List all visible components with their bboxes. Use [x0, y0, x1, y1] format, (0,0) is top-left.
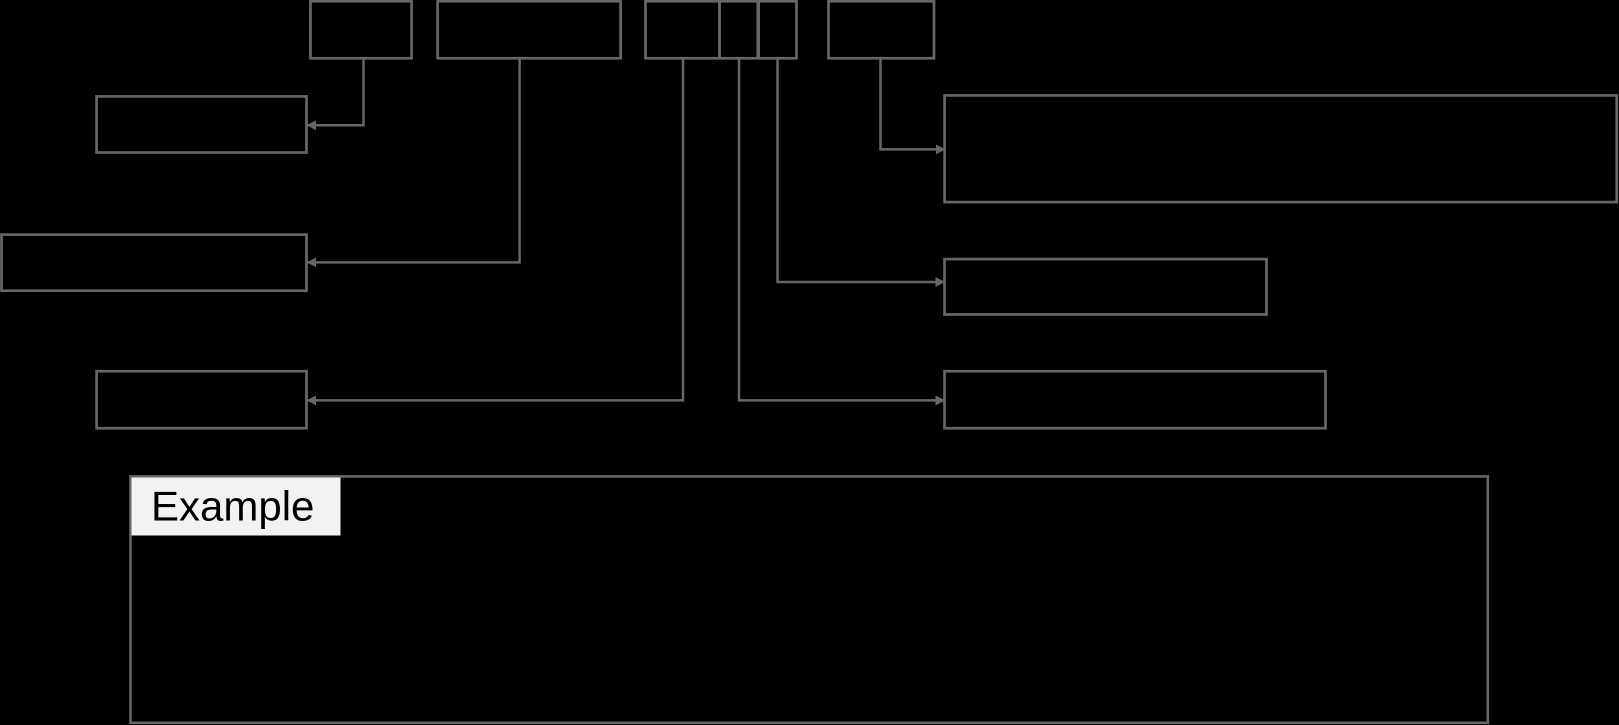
svg-text:Example: Example: [151, 483, 314, 530]
